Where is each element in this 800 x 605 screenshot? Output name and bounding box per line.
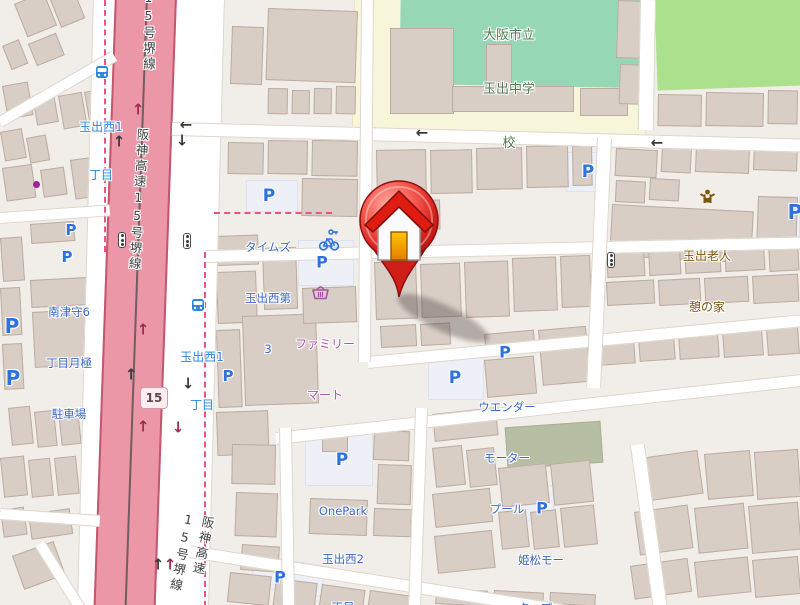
parking-icon: P <box>223 367 234 385</box>
elder-house-label-line: 玉出老人 <box>647 248 767 265</box>
building <box>694 503 749 554</box>
building <box>314 88 332 114</box>
building <box>657 94 702 127</box>
bus-stop-label-line: 丁目 <box>142 397 262 413</box>
himematsu-label-line: タープー <box>481 600 601 605</box>
building <box>752 556 800 598</box>
oneway-arrow-left: ← <box>416 126 429 141</box>
himematsu-motor-pool-label: 姫松モー タープー ル <box>481 520 601 605</box>
bicycle-parking-icon <box>318 228 340 252</box>
familymart-label: ファミリー マート <box>265 302 385 438</box>
street <box>638 0 656 130</box>
building <box>705 92 764 127</box>
onepark-label-line: 玉出西2 <box>283 551 403 567</box>
building <box>14 0 57 37</box>
school-label-line: 校 <box>449 135 569 153</box>
building <box>767 90 798 125</box>
parking-icon: P <box>62 248 73 266</box>
oneway-arrow-left: ← <box>651 136 664 151</box>
map-canvas[interactable]: 15 阪神高速15号堺線 阪神高速15号堺線 阪神高速15号堺線 大阪市立 玉出… <box>0 0 800 605</box>
traffic-signal-icon <box>118 232 126 248</box>
parking-icon: P <box>336 450 348 470</box>
bus-stop-north-label: 玉出西1 丁目 <box>41 87 161 215</box>
onepark-label: OnePark 玉出西2 丁目 <box>283 471 403 605</box>
building <box>766 326 800 356</box>
building <box>704 450 754 500</box>
building <box>292 90 310 114</box>
building <box>268 88 288 114</box>
grass-area <box>654 0 800 91</box>
oneway-arrow-left: ← <box>180 118 193 133</box>
building <box>54 456 80 496</box>
minamitsumori-label-line: 丁目月極 <box>9 355 129 372</box>
building <box>560 255 592 308</box>
minamitsumori-label-line: 南津守6 <box>9 304 129 321</box>
building <box>227 142 264 175</box>
convenience-store-basket-icon <box>311 285 330 300</box>
building <box>649 178 680 202</box>
wender-label-line: プール <box>447 501 567 518</box>
parking-icon: P <box>449 368 461 388</box>
parking-icon: P <box>66 221 77 239</box>
parking-icon: P <box>536 499 548 518</box>
building <box>390 28 454 114</box>
bus-stop-icon <box>191 298 205 312</box>
parking-icon: P <box>6 366 21 390</box>
building <box>336 86 356 114</box>
oneway-arrow-down: ↓ <box>176 134 189 149</box>
building <box>615 148 658 178</box>
bus-stop-south-label: 玉出西1 丁目 <box>142 317 262 445</box>
wender-label-line: モーター <box>447 450 567 467</box>
community-centre-icon <box>699 188 716 205</box>
minamitsumori-label-line: 駐車場 <box>9 406 129 423</box>
parking-icon: P <box>788 200 800 224</box>
traffic-signal-icon <box>607 252 615 268</box>
parking-icon: P <box>274 568 286 587</box>
traffic-signal-icon <box>183 233 191 249</box>
building <box>230 26 264 85</box>
familymart-label-line: マート <box>265 387 385 404</box>
onepark-label-line: 丁目 <box>283 599 403 605</box>
bus-stop-label-line: 玉出西1 <box>142 349 262 365</box>
building <box>227 572 272 605</box>
school-label: 大阪市立 玉出中学 校 <box>449 0 569 189</box>
building <box>380 324 417 348</box>
building <box>311 140 358 177</box>
parking-icon: P <box>316 253 328 272</box>
street <box>408 408 428 605</box>
parking-icon: P <box>5 314 20 338</box>
building <box>0 455 28 497</box>
minamitsumori-parking-label: 南津守6 丁目月極 駐車場 <box>9 270 129 457</box>
oneway-arrow-up: ↑ <box>152 558 165 573</box>
building <box>2 39 28 70</box>
times-parking-label-line: タイムズ <box>208 239 328 256</box>
building <box>234 492 278 537</box>
school-label-line: 玉出中学 <box>449 81 569 99</box>
parking-icon: P <box>499 343 511 362</box>
building <box>512 256 558 312</box>
building <box>694 556 751 597</box>
himematsu-label-line: 姫松モー <box>481 552 601 568</box>
building <box>265 8 357 83</box>
parking-icon: P <box>582 162 594 182</box>
bus-stop-icon <box>95 65 109 79</box>
building <box>615 180 646 204</box>
bus-stop-label-line: 丁目 <box>41 167 161 183</box>
familymart-label-line: ファミリー <box>265 336 385 353</box>
bus-stop-label-line: 玉出西1 <box>41 119 161 135</box>
onepark-label-line: OnePark <box>283 503 403 519</box>
school-label-line: 大阪市立 <box>449 27 569 45</box>
elder-house-label-line: 憩の家 <box>647 299 767 316</box>
motorway-name-label-top: 阪神高速15号堺線 <box>139 0 158 73</box>
shop-poi-dot <box>33 181 40 188</box>
parking-icon: P <box>263 186 275 206</box>
oneway-arrow-up: ↑ <box>164 558 177 573</box>
building <box>267 140 308 175</box>
elder-house-label: 玉出老人 憩の家 <box>647 214 767 350</box>
wender-label-line: ウエンダー <box>447 399 567 416</box>
building <box>754 449 800 500</box>
location-pin[interactable] <box>352 170 448 300</box>
building <box>0 128 27 161</box>
building <box>28 33 65 66</box>
building <box>2 164 36 202</box>
building <box>464 260 510 318</box>
building <box>28 458 54 498</box>
building <box>231 444 276 485</box>
building <box>661 146 692 174</box>
building <box>748 502 800 554</box>
